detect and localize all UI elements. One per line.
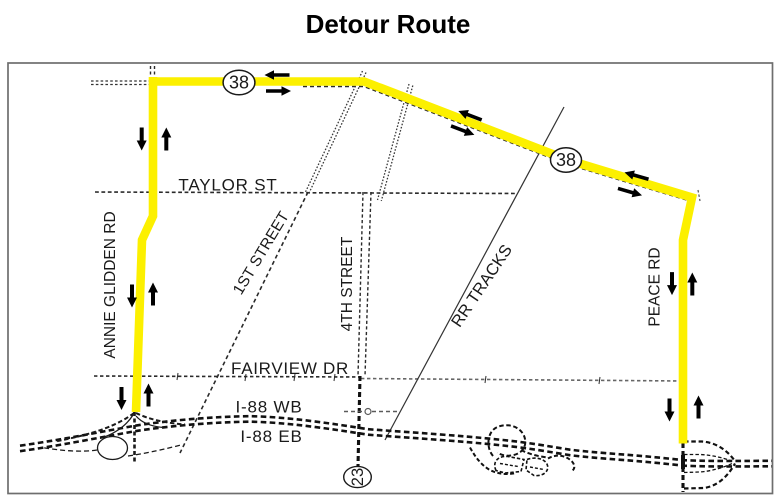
- svg-text:TAYLOR ST: TAYLOR ST: [178, 176, 277, 195]
- svg-text:38: 38: [556, 150, 576, 170]
- svg-text:PEACE RD: PEACE RD: [647, 247, 664, 326]
- svg-text:ANNIE GLIDDEN RD: ANNIE GLIDDEN RD: [102, 211, 119, 358]
- svg-text:I-88 EB: I-88 EB: [240, 427, 302, 446]
- svg-text:4TH STREET: 4TH STREET: [339, 236, 356, 331]
- svg-text:I-88 WB: I-88 WB: [235, 398, 302, 417]
- svg-text:FAIRVIEW DR: FAIRVIEW DR: [231, 359, 349, 378]
- svg-text:38: 38: [229, 73, 249, 93]
- svg-text:23: 23: [349, 468, 367, 486]
